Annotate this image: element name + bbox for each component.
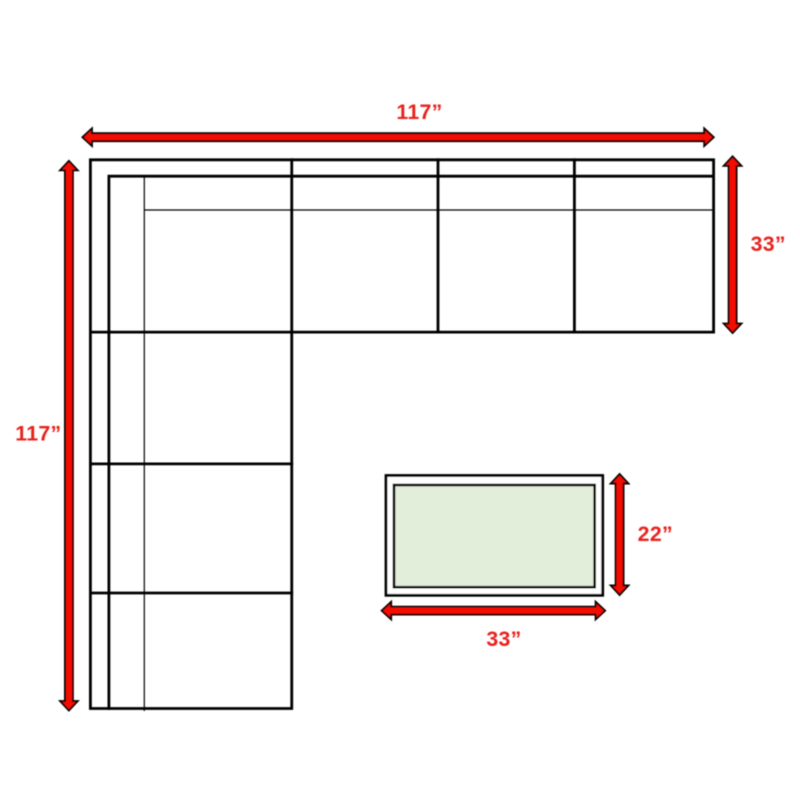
svg-text:117”: 117”	[15, 422, 61, 446]
svg-text:22”: 22”	[638, 522, 673, 546]
svg-text:33”: 33”	[486, 627, 521, 651]
svg-text:33”: 33”	[751, 232, 786, 256]
svg-text:117”: 117”	[396, 100, 442, 124]
